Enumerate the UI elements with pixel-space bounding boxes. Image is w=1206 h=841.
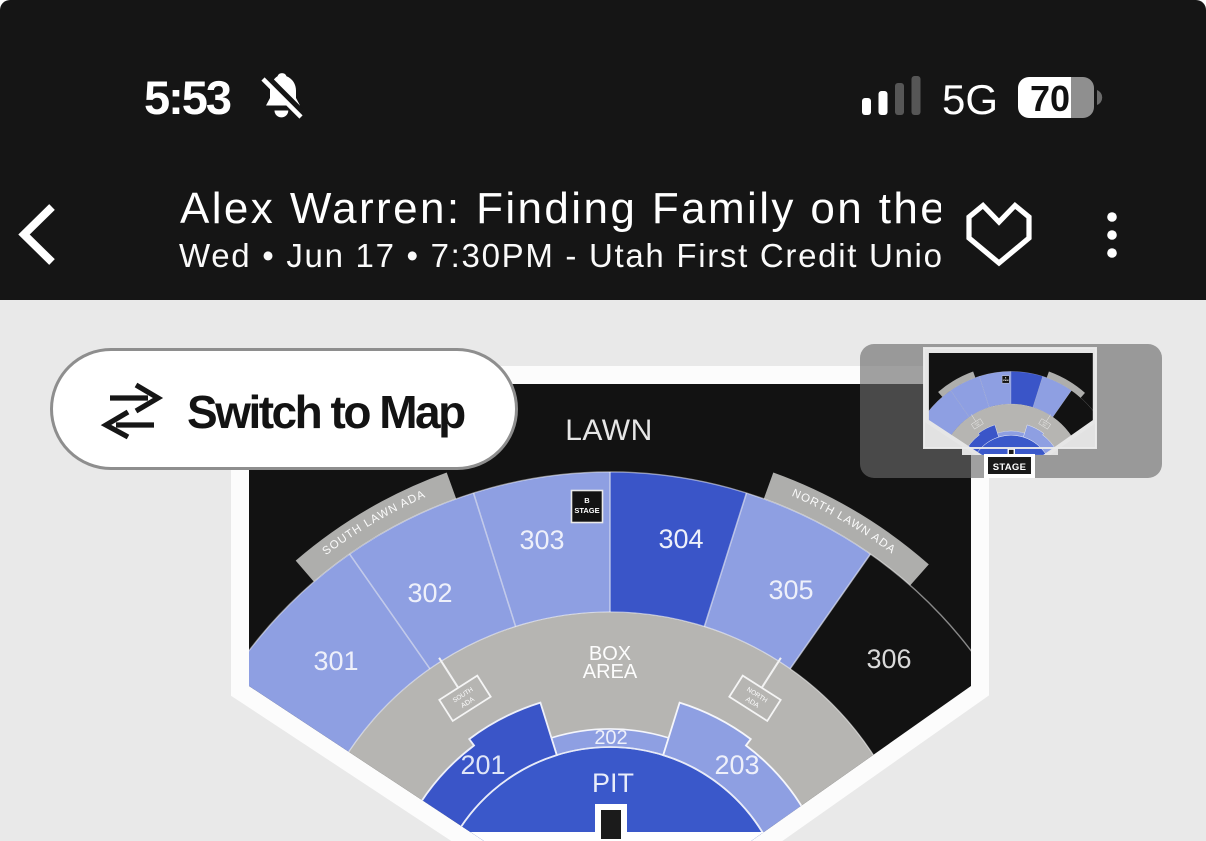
svg-text:LAWN: LAWN xyxy=(565,414,653,447)
svg-text:STAGE: STAGE xyxy=(993,462,1027,473)
svg-text:201: 201 xyxy=(460,750,505,780)
svg-text:AREA: AREA xyxy=(583,661,638,683)
svg-text:202: 202 xyxy=(594,727,627,749)
svg-text:305: 305 xyxy=(768,575,813,605)
svg-text:302: 302 xyxy=(407,578,452,608)
svg-text:306: 306 xyxy=(866,644,911,674)
svg-text:70: 70 xyxy=(1030,78,1070,119)
svg-text:STAGE: STAGE xyxy=(574,506,599,515)
svg-text:PIT: PIT xyxy=(592,768,634,798)
svg-text:203: 203 xyxy=(714,750,759,780)
svg-text:303: 303 xyxy=(519,525,564,555)
svg-text:304: 304 xyxy=(658,524,703,554)
svg-text:301: 301 xyxy=(313,646,358,676)
svg-text:B: B xyxy=(584,496,590,505)
